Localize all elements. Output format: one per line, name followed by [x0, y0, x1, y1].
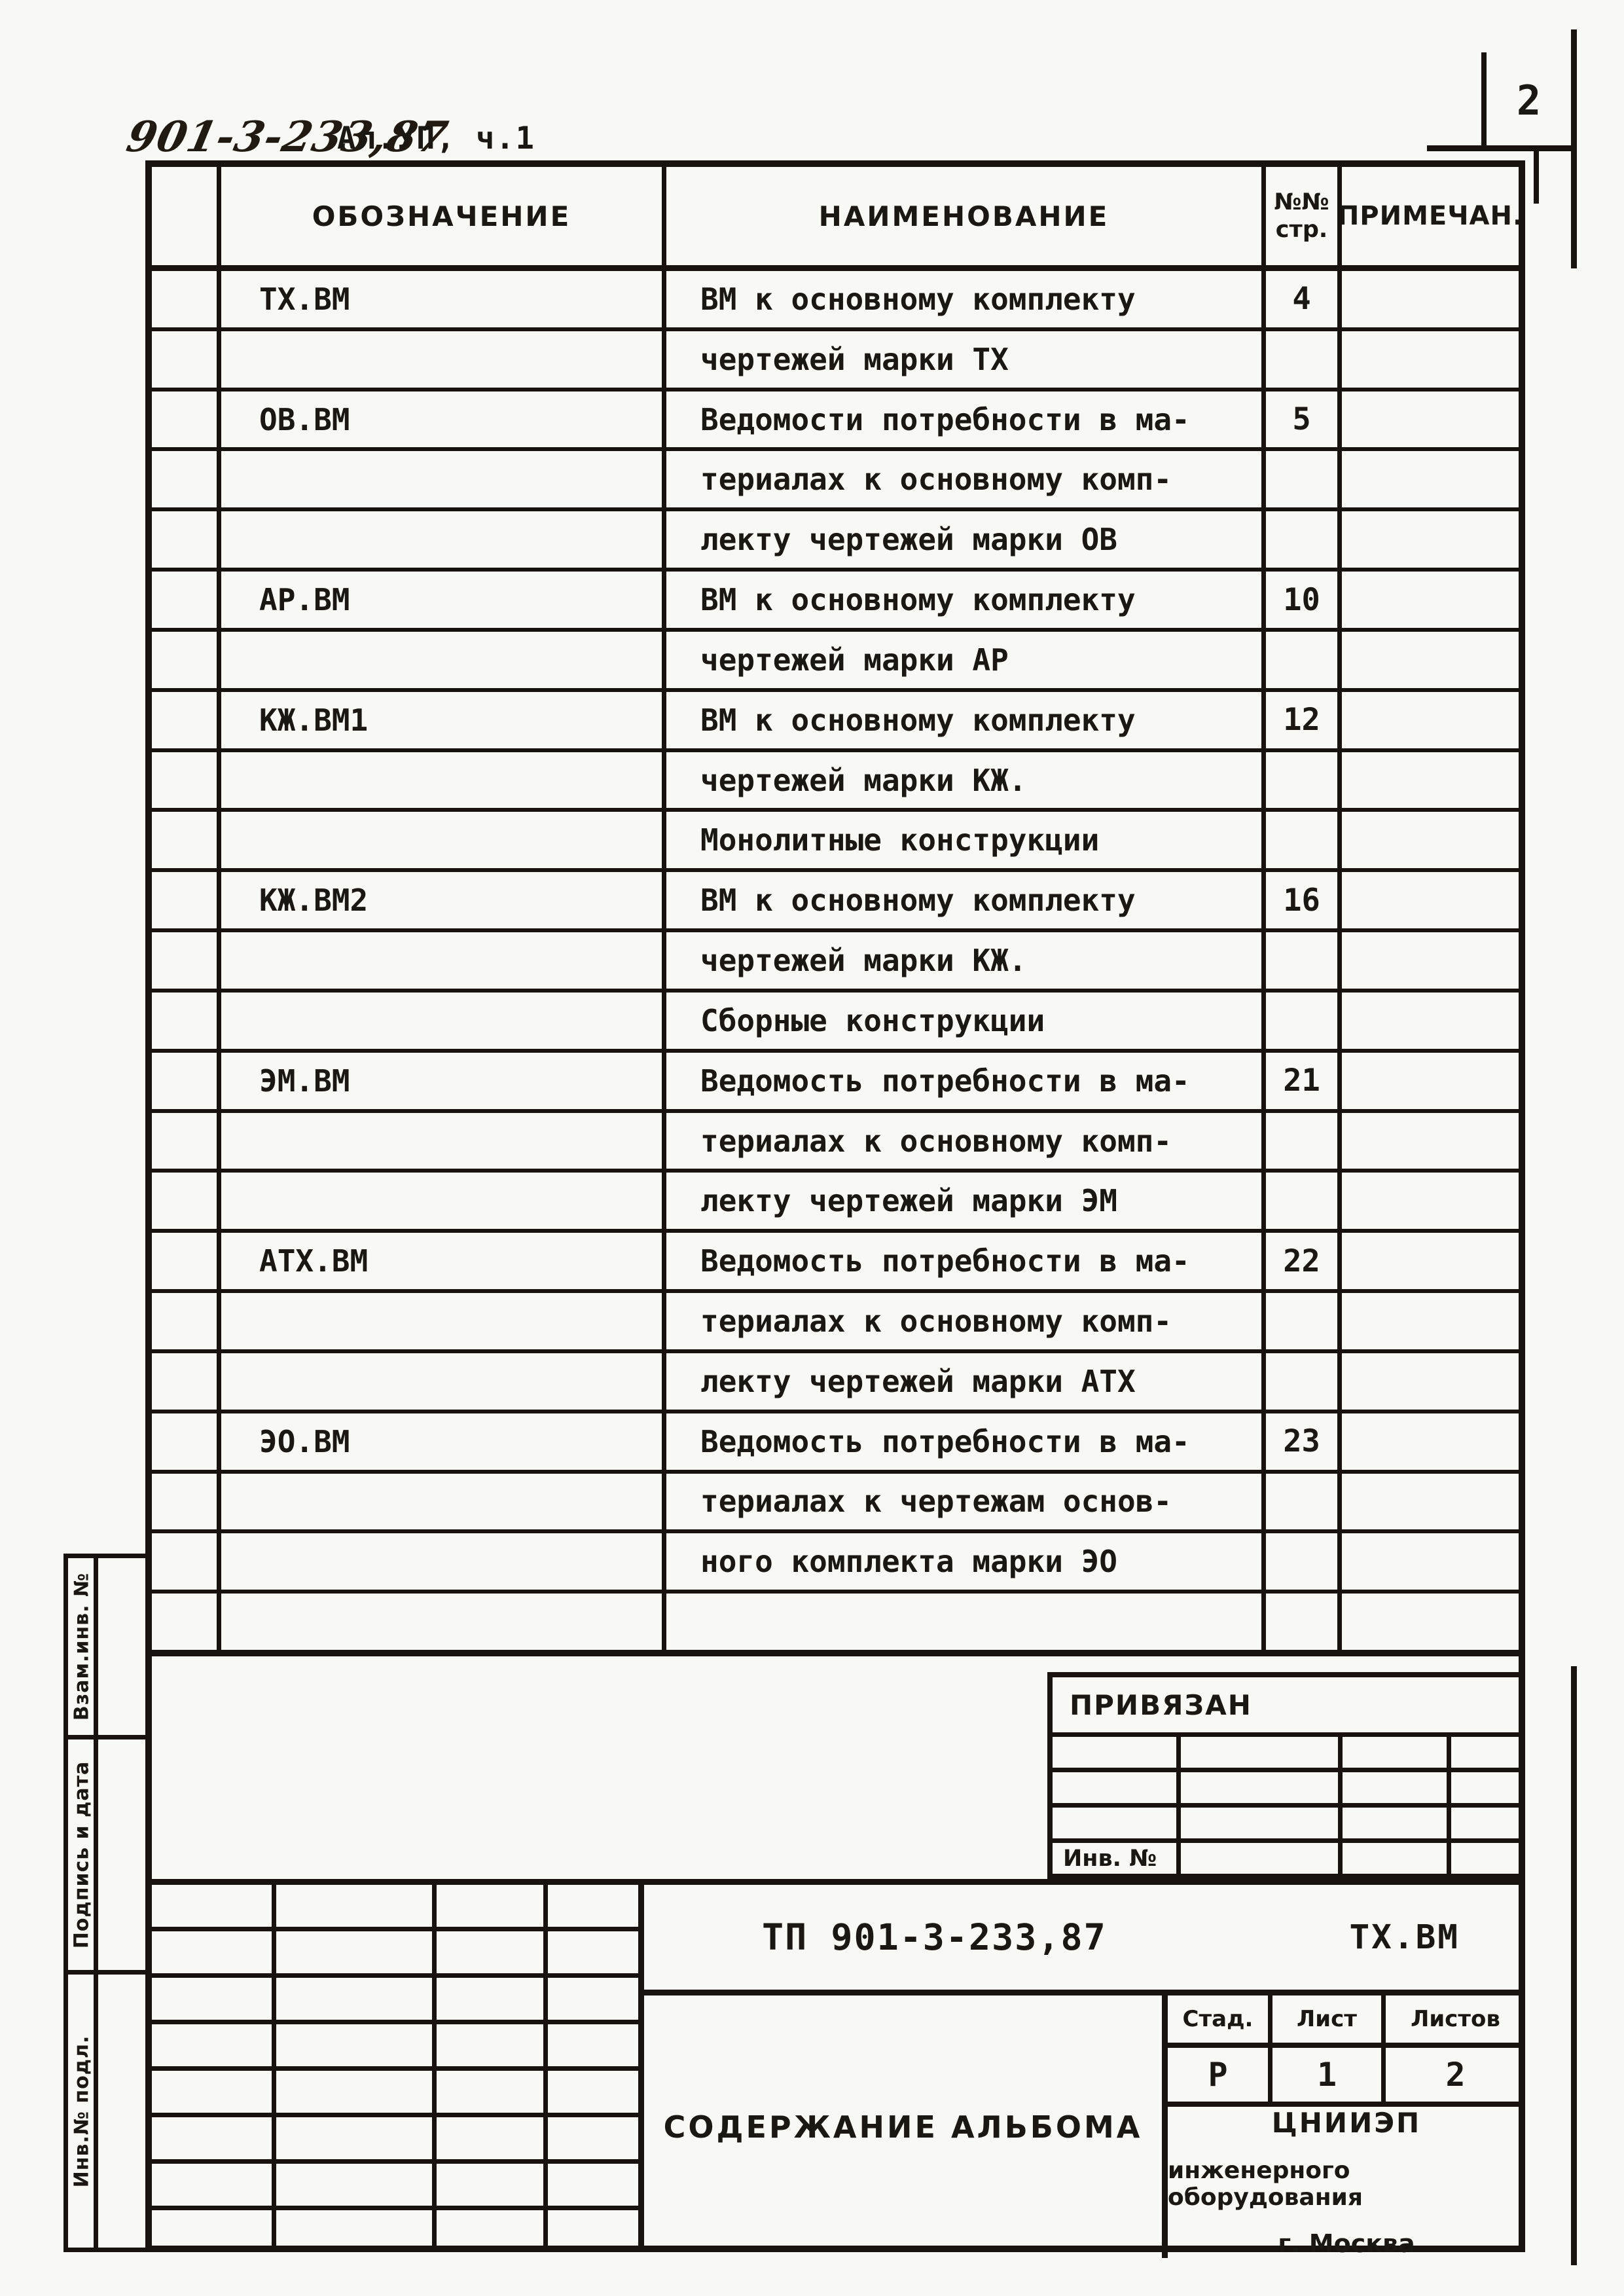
cell-name: [666, 1594, 1266, 1650]
title-block-code-row: ТП 901-3-233,87 ТХ.ВМ: [644, 1885, 1525, 1995]
cell-page: [1266, 1533, 1342, 1590]
cell-margin: [152, 632, 221, 688]
cell-designation: [221, 752, 666, 809]
document-code: ТП 901-3-233,87: [762, 1916, 1107, 1958]
cell-margin: [152, 572, 221, 628]
cell-name: териалах к основному комп-: [666, 451, 1266, 507]
cell-designation: [221, 632, 666, 688]
cell-note: [1342, 1113, 1519, 1169]
cell-name: териалах к чертежам основ-: [666, 1474, 1266, 1530]
cell-margin: [152, 511, 221, 568]
cell-note: [1342, 1474, 1519, 1530]
cell-note: [1342, 752, 1519, 809]
cell-note: [1342, 1413, 1519, 1470]
album-title: СОДЕРЖАНИЕ АЛЬБОМА: [644, 1995, 1168, 2258]
cell-margin: [152, 271, 221, 327]
cell-note: [1342, 1233, 1519, 1289]
cell-note: [1342, 692, 1519, 748]
cell-margin: [152, 812, 221, 868]
cell-margin: [152, 1053, 221, 1109]
privyazan-inv-row: Инв. №: [1053, 1838, 1520, 1874]
outer-right-border-bottom: [1571, 1666, 1577, 2265]
cell-designation: [221, 993, 666, 1049]
cell-designation: [221, 331, 666, 388]
header-page-no: №№ стр.: [1266, 167, 1342, 265]
cell-page: 16: [1266, 872, 1342, 928]
table-row: ЭО.ВМВедомость потребности в ма-23: [152, 1413, 1519, 1474]
cell-page: [1266, 812, 1342, 868]
cell-page: [1266, 1293, 1342, 1349]
cell-note: [1342, 872, 1519, 928]
cell-margin: [152, 1293, 221, 1349]
revision-grid-row: [145, 1931, 638, 1978]
cell-note: [1342, 1594, 1519, 1650]
table-row: териалах к основному комп-: [152, 451, 1519, 511]
table-row: чертежей марки АР: [152, 632, 1519, 692]
cell-page: 5: [1266, 392, 1342, 448]
cell-note: [1342, 1293, 1519, 1349]
cell-page: [1266, 1474, 1342, 1530]
cell-name: Ведомость потребности в ма-: [666, 1233, 1266, 1289]
stage-sheet-header-row: Стад. Лист Листов: [1168, 1995, 1525, 2048]
organization-cell: ЦНИИЭП инженерного оборудования г. Москв…: [1168, 2107, 1525, 2258]
cell-page: 23: [1266, 1413, 1342, 1470]
table-row: Монолитные конструкции: [152, 812, 1519, 872]
margin-cell-podpis: Подпись и дата: [68, 1740, 146, 1975]
cell-designation: [221, 511, 666, 568]
cell-designation: КЖ.ВМ1: [221, 692, 666, 748]
cell-designation: ОВ.ВМ: [221, 392, 666, 448]
cell-note: [1342, 993, 1519, 1049]
cell-note: [1342, 812, 1519, 868]
cell-margin: [152, 1113, 221, 1169]
table-row: чертежей марки КЖ.: [152, 932, 1519, 993]
header-name: НАИМЕНОВАНИЕ: [666, 167, 1266, 265]
cell-page: [1266, 1594, 1342, 1650]
table-row: лекту чертежей марки АТХ: [152, 1353, 1519, 1413]
cell-name: лекту чертежей марки АТХ: [666, 1353, 1266, 1410]
table-row: КЖ.ВМ2ВМ к основному комплекту16: [152, 872, 1519, 932]
cell-name: лекту чертежей марки ОВ: [666, 511, 1266, 568]
table-row: [152, 1594, 1519, 1650]
cell-page: [1266, 331, 1342, 388]
cell-designation: КЖ.ВМ2: [221, 872, 666, 928]
table-row: АР.ВМВМ к основному комплекту10: [152, 572, 1519, 632]
table-row: ОВ.ВМВедомости потребности в ма-5: [152, 392, 1519, 452]
cell-margin: [152, 451, 221, 507]
revision-grid-row: [145, 2210, 638, 2252]
cell-note: [1342, 1533, 1519, 1590]
cell-name: териалах к основному комп-: [666, 1113, 1266, 1169]
cell-page: [1266, 1353, 1342, 1410]
cell-name: Сборные конструкции: [666, 993, 1266, 1049]
cell-name: ВМ к основному комплекту: [666, 271, 1266, 327]
stage-sheet-value-row: Р 1 2: [1168, 2048, 1525, 2107]
cell-name: Монолитные конструкции: [666, 812, 1266, 868]
document-mark: ТХ.ВМ: [1349, 1918, 1460, 1957]
page-number: 2: [1487, 58, 1571, 143]
cell-page: 4: [1266, 271, 1342, 327]
stage-value: Р: [1168, 2048, 1272, 2102]
cell-name: ВМ к основному комплекту: [666, 872, 1266, 928]
revision-grid-row: [145, 2071, 638, 2117]
table-row: териалах к основному комп-: [152, 1113, 1519, 1173]
cell-designation: [221, 1293, 666, 1349]
cell-name: териалах к основному комп-: [666, 1293, 1266, 1349]
sheet-value: 1: [1272, 2048, 1386, 2102]
page-number-box-bottom-line: [1427, 145, 1577, 151]
cell-margin: [152, 692, 221, 748]
stage-label: Стад.: [1168, 1995, 1272, 2043]
inventory-number-label: Инв. №: [1053, 1843, 1181, 1874]
table-row: чертежей марки КЖ.: [152, 752, 1519, 812]
cell-margin: [152, 932, 221, 989]
cell-margin: [152, 1173, 221, 1229]
cell-designation: [221, 1173, 666, 1229]
privyazan-row: [1053, 1732, 1520, 1768]
cell-name: ного комплекта марки ЭО: [666, 1533, 1266, 1590]
cell-designation: ЭМ.ВМ: [221, 1053, 666, 1109]
cell-margin: [152, 1413, 221, 1470]
cell-name: чертежей марки КЖ.: [666, 932, 1266, 989]
cell-designation: АР.ВМ: [221, 572, 666, 628]
table-row: КЖ.ВМ1ВМ к основному комплекту12: [152, 692, 1519, 752]
cell-designation: ТХ.ВМ: [221, 271, 666, 327]
cell-page: [1266, 1173, 1342, 1229]
cell-name: чертежей марки АР: [666, 632, 1266, 688]
revision-grid-row: [145, 2024, 638, 2071]
cell-designation: [221, 451, 666, 507]
cell-designation: [221, 812, 666, 868]
table-row: лекту чертежей марки ОВ: [152, 511, 1519, 572]
cell-name: чертежей марки КЖ.: [666, 752, 1266, 809]
sheets-value: 2: [1386, 2048, 1525, 2102]
header-margin-cell: [152, 167, 221, 265]
cell-page: 10: [1266, 572, 1342, 628]
album-part-label: Ал.УП, ч.1: [337, 120, 535, 156]
table-row: Сборные конструкции: [152, 993, 1519, 1053]
cell-margin: [152, 752, 221, 809]
cell-page: [1266, 752, 1342, 809]
cell-designation: АТХ.ВМ: [221, 1233, 666, 1289]
revision-grid-row: [145, 1978, 638, 2024]
margin-cell-vzam: Взам.инв. №: [68, 1558, 146, 1740]
cell-margin: [152, 872, 221, 928]
cell-page: 21: [1266, 1053, 1342, 1109]
privyazan-row: [1053, 1768, 1520, 1803]
cell-note: [1342, 451, 1519, 507]
sheets-label: Листов: [1386, 1995, 1525, 2043]
cell-margin: [152, 392, 221, 448]
cell-designation: ЭО.ВМ: [221, 1413, 666, 1470]
header-note: ПРИМЕЧАН.: [1342, 167, 1519, 265]
cell-name: Ведомости потребности в ма-: [666, 392, 1266, 448]
header-designation: ОБОЗНАЧЕНИЕ: [221, 167, 666, 265]
privyazan-row: [1053, 1803, 1520, 1838]
cell-name: ВМ к основному комплекту: [666, 692, 1266, 748]
cell-designation: [221, 1474, 666, 1530]
table-row: лекту чертежей марки ЭМ: [152, 1173, 1519, 1233]
contents-table: ОБОЗНАЧЕНИЕ НАИМЕНОВАНИЕ №№ стр. ПРИМЕЧА…: [145, 160, 1525, 1656]
cell-note: [1342, 1353, 1519, 1410]
organization-name: ЦНИИЭП: [1272, 2107, 1421, 2139]
cell-margin: [152, 993, 221, 1049]
revision-grid-row: [145, 1885, 638, 1931]
privyazan-block: ПРИВЯЗАН Инв. №: [1047, 1672, 1525, 1879]
margin-cell-inv: Инв.№ подл.: [68, 1975, 146, 2248]
left-margin-strip: Взам.инв. № Подпись и дата Инв.№ подл.: [63, 1554, 146, 2252]
revision-grid-row: [145, 2117, 638, 2164]
cell-page: 12: [1266, 692, 1342, 748]
cell-margin: [152, 1533, 221, 1590]
sheet-label: Лист: [1272, 1995, 1386, 2043]
cell-page: 22: [1266, 1233, 1342, 1289]
scanned-document-sheet: 901-3-233,87 Ал.УП, ч.1 2 ОБОЗНАЧЕНИЕ НА…: [0, 0, 1624, 2296]
cell-name: ВМ к основному комплекту: [666, 572, 1266, 628]
cell-designation: [221, 1353, 666, 1410]
privyazan-label: ПРИВЯЗАН: [1053, 1677, 1520, 1732]
cell-page: [1266, 511, 1342, 568]
cell-page: [1266, 932, 1342, 989]
cell-name: Ведомость потребности в ма-: [666, 1413, 1266, 1470]
organization-city: г. Москва: [1278, 2229, 1415, 2258]
cell-margin: [152, 1474, 221, 1530]
inv-podl-label: Инв.№ подл.: [71, 2035, 94, 2187]
cell-note: [1342, 511, 1519, 568]
vzam-inv-label: Взам.инв. №: [71, 1573, 94, 1721]
cell-note: [1342, 1053, 1519, 1109]
cell-margin: [152, 331, 221, 388]
table-row: чертежей марки ТХ: [152, 331, 1519, 392]
cell-margin: [152, 1594, 221, 1650]
cell-note: [1342, 1173, 1519, 1229]
cell-note: [1342, 271, 1519, 327]
table-header-row: ОБОЗНАЧЕНИЕ НАИМЕНОВАНИЕ №№ стр. ПРИМЕЧА…: [152, 167, 1519, 271]
cell-name: лекту чертежей марки ЭМ: [666, 1173, 1266, 1229]
cell-name: чертежей марки ТХ: [666, 331, 1266, 388]
table-row: териалах к основному комп-: [152, 1293, 1519, 1353]
table-row: ЭМ.ВМВедомость потребности в ма-21: [152, 1053, 1519, 1113]
cell-page: [1266, 632, 1342, 688]
revision-grid: [145, 1879, 638, 2252]
cell-margin: [152, 1233, 221, 1289]
header-page-line1: №№: [1274, 189, 1329, 216]
page-number-box-left-line: [1481, 52, 1487, 151]
table-row: териалах к чертежам основ-: [152, 1474, 1519, 1534]
cell-note: [1342, 932, 1519, 989]
organization-department: инженерного оборудования: [1168, 2157, 1525, 2211]
cell-designation: [221, 932, 666, 989]
cell-designation: [221, 1113, 666, 1169]
cell-note: [1342, 632, 1519, 688]
page-number-box-stub-line: [1534, 151, 1539, 204]
revision-grid-row: [145, 2164, 638, 2210]
cell-margin: [152, 1353, 221, 1410]
title-block: ТП 901-3-233,87 ТХ.ВМ СОДЕРЖАНИЕ АЛЬБОМА…: [638, 1879, 1525, 2252]
cell-designation: [221, 1594, 666, 1650]
cell-note: [1342, 392, 1519, 448]
cell-name: Ведомость потребности в ма-: [666, 1053, 1266, 1109]
podpis-data-label: Подпись и дата: [71, 1761, 94, 1948]
cell-page: [1266, 1113, 1342, 1169]
cell-page: [1266, 993, 1342, 1049]
table-row: АТХ.ВМВедомость потребности в ма-22: [152, 1233, 1519, 1293]
header-page-line2: стр.: [1276, 216, 1327, 244]
cell-designation: [221, 1533, 666, 1590]
cell-page: [1266, 451, 1342, 507]
cell-note: [1342, 572, 1519, 628]
cell-note: [1342, 331, 1519, 388]
table-row: ТХ.ВМВМ к основному комплекту4: [152, 271, 1519, 331]
table-row: ного комплекта марки ЭО: [152, 1533, 1519, 1594]
